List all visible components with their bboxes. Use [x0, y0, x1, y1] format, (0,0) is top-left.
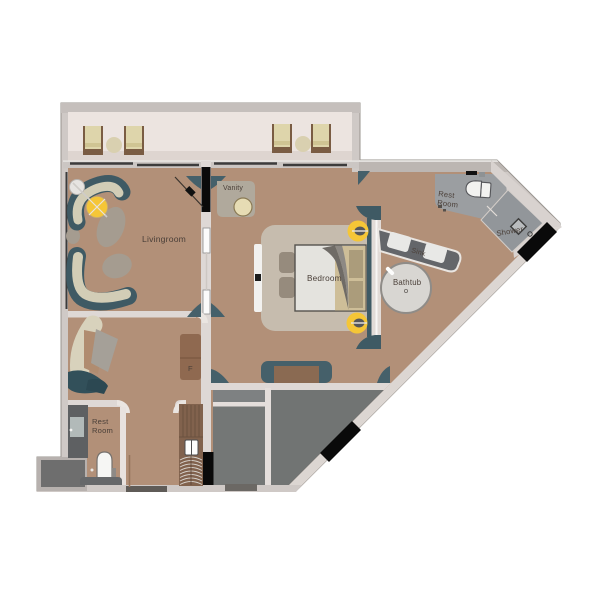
svg-text:Bedroom: Bedroom [307, 274, 342, 283]
svg-text:Vanity: Vanity [223, 185, 243, 192]
svg-text:Room: Room [92, 426, 113, 435]
svg-text:Rest: Rest [92, 417, 109, 426]
svg-text:Livingroom: Livingroom [142, 234, 186, 244]
svg-text:F: F [188, 364, 193, 373]
svg-text:Bathtub: Bathtub [393, 278, 422, 287]
